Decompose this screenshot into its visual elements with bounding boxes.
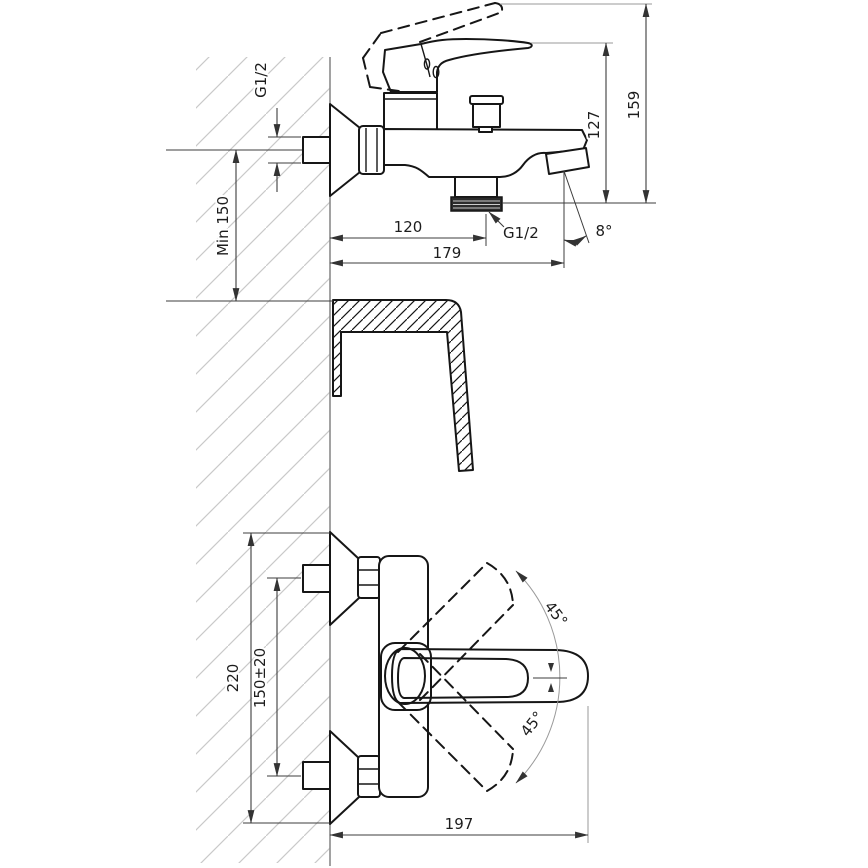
bottom-outlet [451, 177, 502, 211]
outlet-thread-label: G1/2 [503, 224, 539, 242]
dim-spout-angle: 8° [564, 171, 613, 243]
dim-220-label: 220 [224, 664, 242, 693]
dim-outlet-thread: G1/2 [489, 212, 539, 242]
supply-pipe [303, 137, 331, 163]
dim-179-label: 179 [433, 244, 462, 262]
supply-pipe-top [303, 565, 331, 592]
outlet-thread [451, 197, 502, 211]
dim-127: 127 [531, 43, 613, 203]
tub-rim-section [333, 300, 473, 471]
dim-120: 120 [330, 214, 486, 246]
technical-drawing-page: G1/2 Min 150 120 179 G1/2 8° [0, 0, 868, 868]
min-height-label: Min 150 [214, 196, 232, 256]
spout-angle-label: 8° [595, 222, 612, 240]
shower-connector [470, 96, 503, 132]
escutcheon [330, 104, 360, 196]
handle-side [383, 39, 532, 92]
tub-rim-outline [333, 300, 473, 471]
hex-nut-bottom [358, 756, 380, 797]
dim-179: 179 [330, 171, 564, 268]
wall-hatching [196, 57, 330, 863]
dim-159-label: 159 [625, 91, 643, 120]
dim-159: 159 [500, 4, 652, 203]
dim-150-20-label: 150±20 [251, 648, 269, 708]
hex-nut [359, 126, 384, 174]
supply-thread-label: G1/2 [252, 62, 270, 98]
handle-front-face [398, 658, 528, 698]
side-view [303, 3, 589, 211]
swing-up-label: 45° [541, 598, 572, 630]
swing-down-label: 45° [517, 708, 548, 740]
escutcheon-bottom [330, 731, 359, 824]
front-view [303, 532, 588, 824]
dim-127-label: 127 [585, 111, 603, 140]
faucet-dimension-drawing: G1/2 Min 150 120 179 G1/2 8° [0, 0, 868, 868]
hex-nut-top [358, 557, 380, 598]
dim-197-label: 197 [445, 815, 474, 833]
dim-120-label: 120 [394, 218, 423, 236]
escutcheon-top [330, 532, 359, 625]
supply-pipe-bottom [303, 762, 331, 789]
wall-section [196, 57, 330, 866]
